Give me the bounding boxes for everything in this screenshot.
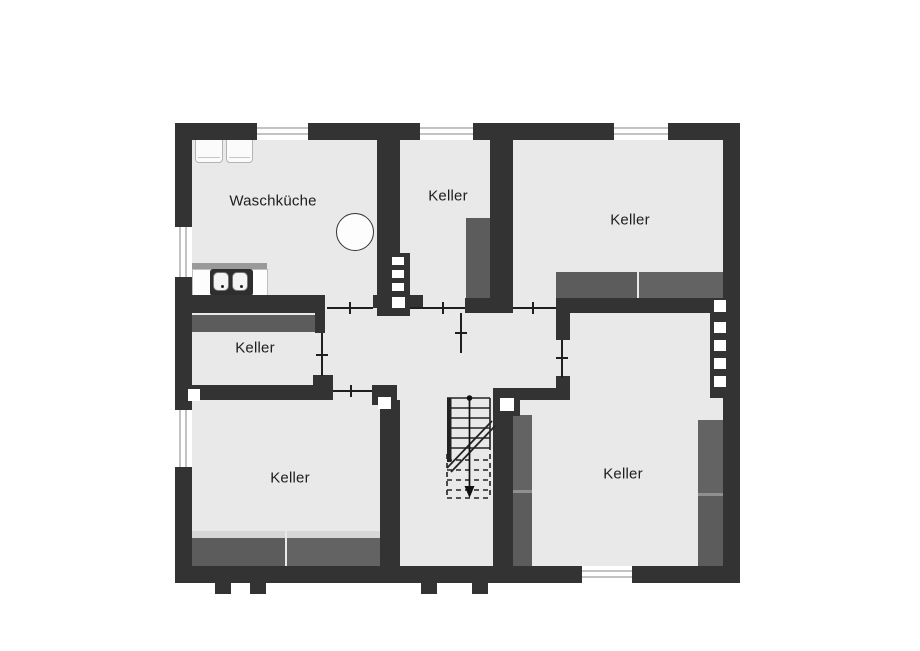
wall <box>556 313 570 340</box>
room-label-waschkueche: Waschküche <box>229 193 316 210</box>
chimney-vent <box>714 376 726 387</box>
window <box>175 410 192 467</box>
shelf <box>513 415 532 490</box>
wall <box>380 400 400 566</box>
door-opening <box>333 390 372 392</box>
wall <box>465 298 513 313</box>
shelf <box>466 218 490 298</box>
boiler-icon <box>336 213 374 251</box>
chimney-vent <box>392 257 404 265</box>
room-label-keller-top-right: Keller <box>610 212 650 229</box>
wall-stub <box>215 583 231 594</box>
shelf <box>192 315 315 332</box>
staircase-down-icon <box>440 392 500 506</box>
chimney-vent <box>392 283 404 291</box>
floor-plan: Waschküche Keller Keller Keller Keller K… <box>0 0 920 651</box>
wall-stub <box>421 583 437 594</box>
wall <box>192 295 325 313</box>
door-opening <box>513 307 556 309</box>
window <box>614 123 668 140</box>
window <box>175 227 192 277</box>
chimney-vent <box>714 322 726 333</box>
stairs-down-arrow <box>465 486 475 498</box>
door-opening <box>410 307 465 309</box>
door-frame-marker <box>714 300 726 312</box>
chimney-vent <box>392 297 405 308</box>
shelf <box>287 538 380 566</box>
shelf <box>698 496 723 566</box>
door-frame-marker <box>500 398 514 411</box>
chimney-vent <box>392 270 404 278</box>
wall <box>315 295 325 333</box>
window <box>420 123 473 140</box>
room-label-keller-top-middle: Keller <box>428 188 468 205</box>
chimney-vent <box>714 340 726 351</box>
wall <box>490 140 513 313</box>
door-opening <box>561 340 563 378</box>
dryer-icon <box>226 137 253 163</box>
shelf <box>513 493 532 566</box>
chimney-vent <box>714 358 726 369</box>
exterior-wall <box>175 123 192 583</box>
shelf <box>556 272 637 298</box>
door-frame-marker <box>378 397 391 409</box>
room-label-keller-middle-left: Keller <box>235 340 275 357</box>
door-frame-marker <box>188 389 200 401</box>
shelf <box>192 538 285 566</box>
window <box>257 123 308 140</box>
wall-stub <box>472 583 488 594</box>
wall <box>377 140 400 253</box>
room-label-keller-bottom-left: Keller <box>270 470 310 487</box>
shelf <box>639 272 723 298</box>
washer-icon <box>195 137 223 163</box>
sink-icon <box>210 269 253 296</box>
exterior-wall <box>723 123 740 583</box>
wall <box>556 376 570 400</box>
exterior-wall <box>175 566 740 583</box>
shelf <box>698 420 723 493</box>
window <box>582 566 632 583</box>
wall-stub <box>250 583 266 594</box>
room-label-keller-bottom-right: Keller <box>603 466 643 483</box>
